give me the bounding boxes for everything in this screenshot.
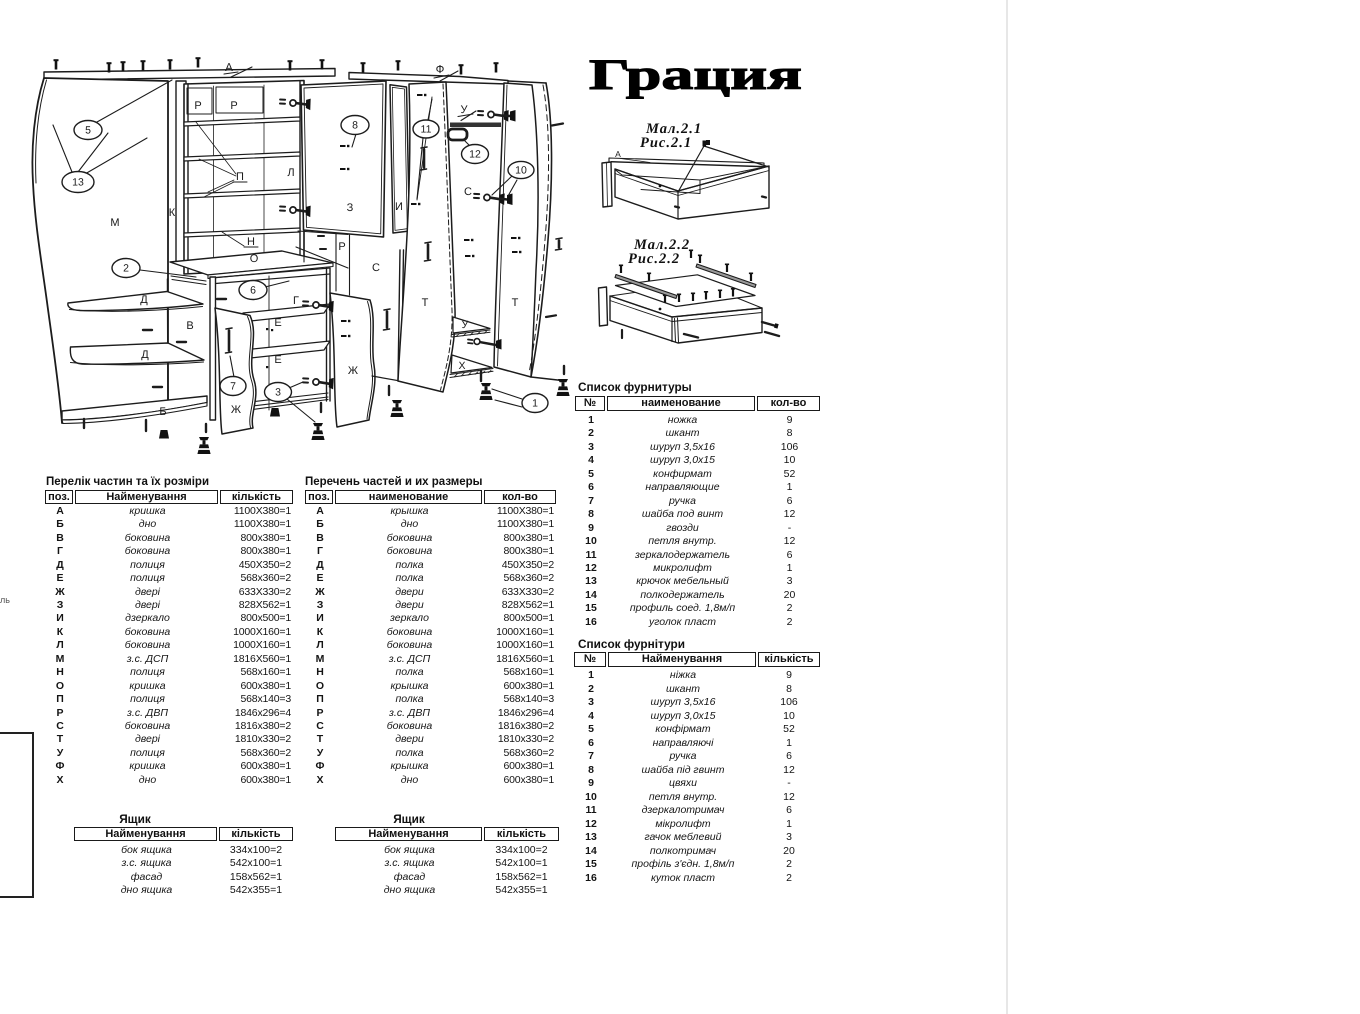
svg-text:Р: Р xyxy=(338,241,345,253)
svg-text:6: 6 xyxy=(250,285,256,297)
svg-text:Т: Т xyxy=(512,297,519,309)
svg-text:А: А xyxy=(225,62,233,74)
svg-text:Ж: Ж xyxy=(348,365,358,377)
svg-text:3: 3 xyxy=(275,387,281,399)
svg-text:Д: Д xyxy=(140,294,148,306)
svg-text:2: 2 xyxy=(123,263,129,275)
svg-text:Рис.2.1: Рис.2.1 xyxy=(640,135,692,151)
svg-text:К: К xyxy=(169,207,176,219)
svg-text:А: А xyxy=(615,149,621,159)
svg-text:З: З xyxy=(347,202,354,214)
svg-text:У: У xyxy=(461,104,469,116)
svg-text:11: 11 xyxy=(421,124,432,136)
svg-text:М: М xyxy=(110,217,119,229)
svg-text:10: 10 xyxy=(515,165,527,177)
svg-text:Х: Х xyxy=(458,360,465,372)
svg-text:В: В xyxy=(186,320,193,332)
svg-text:Б: Б xyxy=(159,406,166,418)
svg-text:С: С xyxy=(464,186,472,198)
svg-text:Ж: Ж xyxy=(231,404,241,416)
svg-text:Р: Р xyxy=(194,100,201,112)
svg-text:7: 7 xyxy=(230,381,236,393)
svg-text:Е: Е xyxy=(274,317,281,329)
svg-text:Г: Г xyxy=(293,295,299,307)
svg-text:1: 1 xyxy=(532,398,538,410)
svg-text:Д: Д xyxy=(141,349,149,361)
svg-text:И: И xyxy=(395,201,403,213)
svg-text:8: 8 xyxy=(352,120,358,132)
svg-text:5: 5 xyxy=(85,125,91,137)
svg-text:Л: Л xyxy=(287,167,294,179)
svg-text:Е: Е xyxy=(274,354,281,366)
svg-text:Р: Р xyxy=(230,100,237,112)
svg-text:Н: Н xyxy=(247,236,255,248)
svg-text:П: П xyxy=(236,171,244,183)
svg-text:12: 12 xyxy=(469,149,481,161)
svg-text:С: С xyxy=(372,262,380,274)
svg-text:13: 13 xyxy=(72,177,84,189)
svg-text:Т: Т xyxy=(422,297,429,309)
svg-text:У: У xyxy=(462,319,469,331)
svg-text:Ф: Ф xyxy=(436,64,445,76)
svg-text:О: О xyxy=(250,253,259,265)
svg-text:Рис.2.2: Рис.2.2 xyxy=(628,251,680,267)
